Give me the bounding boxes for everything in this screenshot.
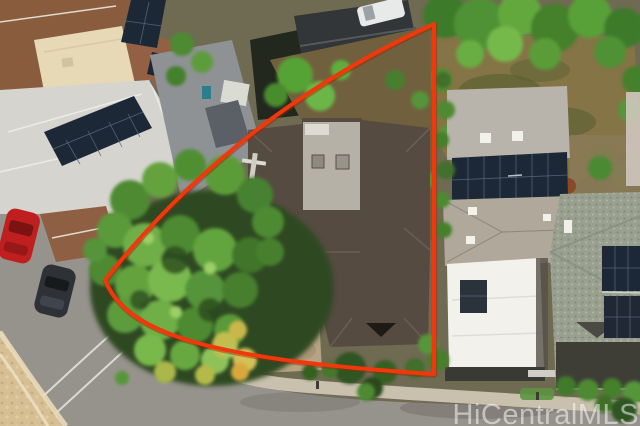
- right-edge-wall: [626, 92, 640, 186]
- roof-vent: [312, 155, 324, 168]
- aerial-photo: HiCentralMLS: [0, 0, 640, 426]
- house-speckled: [550, 192, 640, 423]
- roof-vent: [512, 131, 523, 141]
- white-flat-roof: [447, 258, 544, 370]
- watermark: HiCentralMLS: [453, 401, 640, 426]
- gray-roof-upper: [447, 86, 570, 160]
- teal-bin: [202, 86, 211, 99]
- roof-edge-shadow: [536, 258, 548, 370]
- aerial-scene: [0, 0, 640, 426]
- roof-vent: [564, 220, 572, 233]
- sidewalk-bush: [357, 383, 375, 401]
- roof-vent: [468, 207, 477, 215]
- roof-vent: [466, 236, 475, 244]
- mailbox-post: [316, 381, 319, 389]
- solar-array-neighbor: [452, 152, 568, 202]
- solar-water-heater: [460, 280, 487, 313]
- roof-vent: [480, 133, 491, 143]
- roof-vent: [336, 155, 349, 169]
